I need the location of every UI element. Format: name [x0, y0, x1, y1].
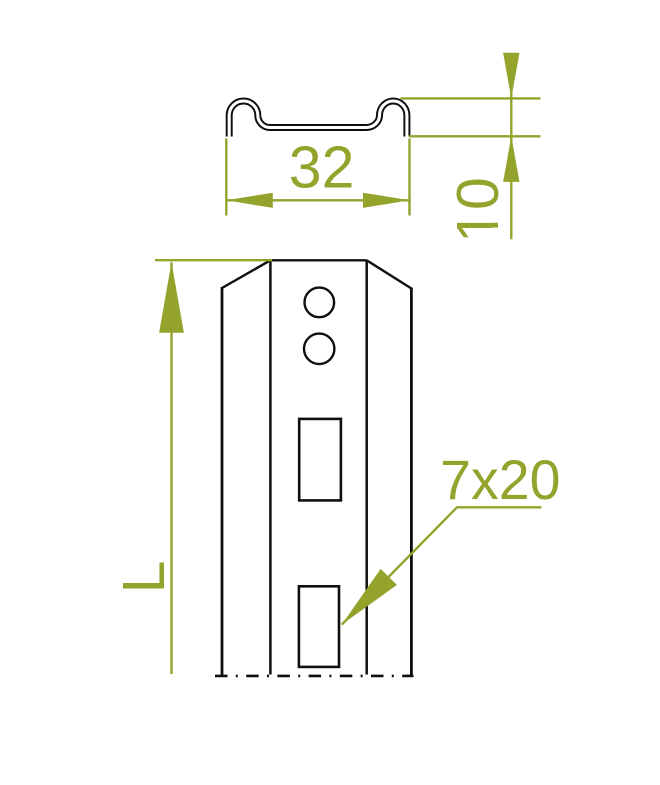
svg-text:10: 10 — [445, 177, 511, 243]
svg-text:32: 32 — [289, 135, 355, 201]
svg-text:L: L — [111, 561, 177, 594]
svg-text:7x20: 7x20 — [440, 449, 560, 511]
